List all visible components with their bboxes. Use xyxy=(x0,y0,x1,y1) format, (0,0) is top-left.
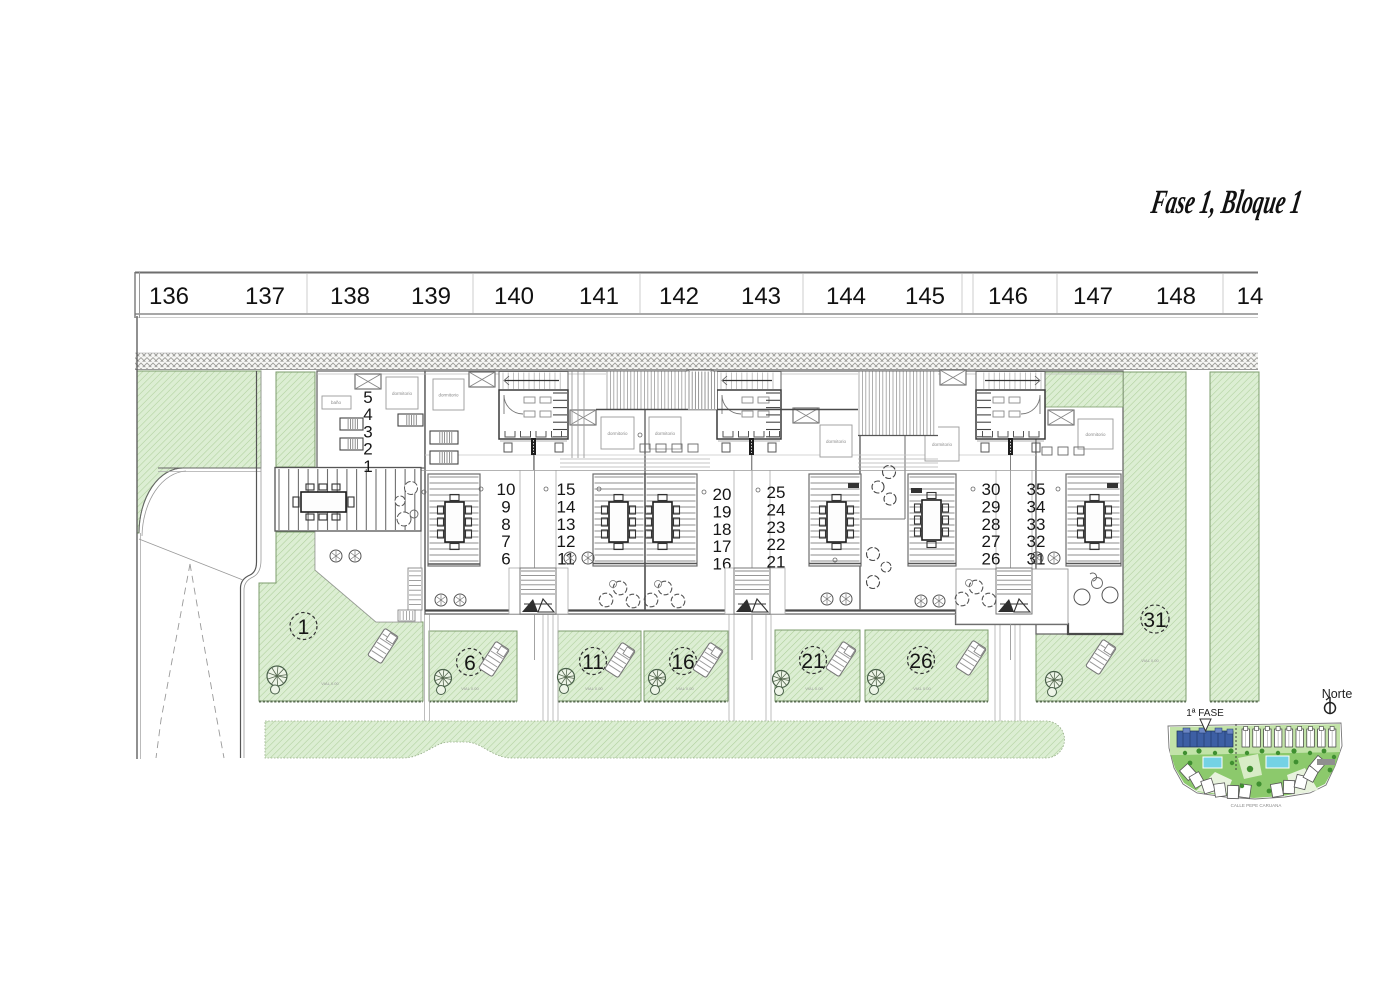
svg-text:35: 35 xyxy=(1027,480,1046,499)
svg-text:CALLE PEPE CARUANA: CALLE PEPE CARUANA xyxy=(1231,803,1282,808)
svg-text:VIAL 0.00: VIAL 0.00 xyxy=(1141,658,1159,663)
svg-text:146: 146 xyxy=(988,283,1028,310)
svg-text:139: 139 xyxy=(411,283,451,310)
svg-text:8: 8 xyxy=(501,515,510,534)
svg-text:12: 12 xyxy=(557,532,576,551)
svg-text:27: 27 xyxy=(982,532,1001,551)
svg-text:13: 13 xyxy=(557,515,576,534)
svg-text:dormitorio: dormitorio xyxy=(607,431,628,436)
svg-text:147: 147 xyxy=(1073,283,1113,310)
svg-text:7: 7 xyxy=(501,532,510,551)
svg-text:dormitorio: dormitorio xyxy=(1085,432,1106,437)
svg-text:16: 16 xyxy=(671,651,694,674)
svg-text:28: 28 xyxy=(982,515,1001,534)
svg-text:3: 3 xyxy=(363,422,372,441)
svg-text:19: 19 xyxy=(713,502,732,521)
svg-text:30: 30 xyxy=(982,480,1001,499)
svg-text:Fase 1, Bloque 1: Fase 1, Bloque 1 xyxy=(1148,183,1305,221)
svg-text:21: 21 xyxy=(801,650,824,673)
svg-text:136: 136 xyxy=(149,283,189,310)
svg-text:18: 18 xyxy=(713,520,732,539)
svg-text:VIAL 0.00: VIAL 0.00 xyxy=(321,681,339,686)
svg-text:dormitorio: dormitorio xyxy=(392,391,413,396)
svg-text:11: 11 xyxy=(582,651,604,674)
svg-text:dormitorio: dormitorio xyxy=(438,393,459,398)
svg-text:145: 145 xyxy=(905,283,945,310)
svg-text:26: 26 xyxy=(982,550,1001,569)
svg-text:2: 2 xyxy=(363,440,372,459)
svg-text:baño: baño xyxy=(331,400,342,405)
svg-text:23: 23 xyxy=(767,518,786,537)
svg-text:24: 24 xyxy=(767,500,786,519)
svg-text:VIAL 0.00: VIAL 0.00 xyxy=(461,686,479,691)
svg-text:143: 143 xyxy=(741,283,781,310)
svg-text:141: 141 xyxy=(579,283,619,310)
svg-text:6: 6 xyxy=(501,550,510,569)
svg-text:15: 15 xyxy=(557,480,576,499)
svg-text:137: 137 xyxy=(245,283,285,310)
svg-text:VIAL 0.00: VIAL 0.00 xyxy=(913,686,931,691)
svg-text:VIAL 0.00: VIAL 0.00 xyxy=(585,686,603,691)
svg-text:144: 144 xyxy=(826,283,866,310)
svg-text:148: 148 xyxy=(1156,283,1196,310)
svg-text:29: 29 xyxy=(982,497,1001,516)
svg-text:9: 9 xyxy=(501,497,510,516)
svg-text:VIAL 0.00: VIAL 0.00 xyxy=(805,686,823,691)
svg-text:1: 1 xyxy=(363,457,372,476)
svg-text:1: 1 xyxy=(298,616,310,639)
svg-text:138: 138 xyxy=(330,283,370,310)
svg-text:25: 25 xyxy=(767,483,786,502)
svg-text:dormitorio: dormitorio xyxy=(655,431,676,436)
svg-text:14: 14 xyxy=(557,497,576,516)
svg-text:33: 33 xyxy=(1027,515,1046,534)
svg-text:4: 4 xyxy=(363,405,372,424)
svg-text:26: 26 xyxy=(909,650,932,673)
svg-text:32: 32 xyxy=(1027,532,1046,551)
svg-text:140: 140 xyxy=(494,283,534,310)
svg-text:dormitorio: dormitorio xyxy=(826,439,847,444)
svg-text:5: 5 xyxy=(363,388,372,407)
svg-text:31: 31 xyxy=(1143,609,1166,632)
svg-text:dormitorio: dormitorio xyxy=(932,442,953,447)
svg-text:6: 6 xyxy=(464,652,476,675)
svg-text:10: 10 xyxy=(497,480,516,499)
svg-text:34: 34 xyxy=(1027,497,1046,516)
svg-text:VIAL 0.00: VIAL 0.00 xyxy=(676,686,694,691)
svg-text:22: 22 xyxy=(767,535,786,554)
svg-text:1ª FASE: 1ª FASE xyxy=(1186,708,1224,719)
svg-text:17: 17 xyxy=(713,537,732,556)
svg-text:Norte: Norte xyxy=(1322,687,1353,701)
svg-text:20: 20 xyxy=(713,485,732,504)
svg-text:14: 14 xyxy=(1237,283,1264,310)
svg-text:142: 142 xyxy=(659,283,699,310)
